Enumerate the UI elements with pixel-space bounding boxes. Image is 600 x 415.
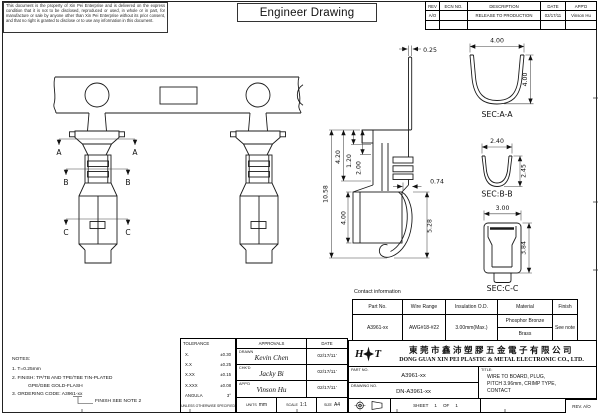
drawing-no-value: DN-A3961-xx bbox=[349, 389, 478, 395]
approval-row-checked: CHK'D Jacky Bi 02/17/11' bbox=[237, 365, 347, 381]
sec-cc-width: 3.00 bbox=[496, 205, 510, 212]
approval-row-approved: APP'D Vinson Hu 02/17/11' bbox=[237, 381, 347, 397]
contact-header-insulation: Insulation O.D. bbox=[446, 300, 497, 315]
terminal-front-view bbox=[70, 113, 125, 263]
dim-lance-offset: 0.74 bbox=[430, 179, 444, 186]
revision-badge: REV. A/O bbox=[565, 399, 597, 413]
sheet-cell: SHEET 1 OF 1 bbox=[391, 399, 481, 412]
tolerance-row: ANGULA3° bbox=[181, 391, 235, 401]
tolerance-title: TOLERANCE bbox=[181, 339, 235, 349]
dim-box-height: 4.00 bbox=[341, 211, 348, 225]
company-logo: HT bbox=[349, 346, 387, 362]
terminal-front-views bbox=[70, 113, 286, 263]
section-marker-b2: B bbox=[125, 178, 130, 187]
contact-col-material: Material Phosphor Bronze Brass bbox=[498, 300, 553, 340]
contact-material-bottom: Brass bbox=[498, 328, 552, 340]
contact-header-finish: Finish bbox=[553, 300, 577, 315]
section-cut-lines bbox=[59, 139, 135, 225]
title-line-2: PITCH 3.96mm, CRIMP TYPE, bbox=[487, 381, 556, 387]
tolerance-row: X.XXX±0.08 bbox=[181, 380, 235, 390]
section-view-cc bbox=[484, 223, 521, 283]
strip-hole-rect bbox=[160, 87, 197, 104]
units-cell: UNITS mm bbox=[237, 398, 277, 412]
drawing-no-cell: DRAWING NO. DN-A3961-xx bbox=[349, 383, 478, 398]
title-block: HT 東莞市鑫沛塑膠五金電子有限公司 DONG GUAN XIN PEI PLA… bbox=[348, 340, 597, 413]
contact-header-partno: Part No. bbox=[353, 300, 402, 315]
engineering-drawing-sheet: { "sheet": { "disclaimer": "This documen… bbox=[0, 0, 600, 415]
size-cell: SIZE A4 bbox=[317, 398, 347, 412]
tolerance-footer: UNLESS OTHERWISE SPECIFIED bbox=[181, 401, 235, 412]
logo-star-icon bbox=[363, 346, 374, 362]
contact-col-partno: Part No. A3961-xx bbox=[353, 300, 403, 340]
part-no-cell: PART NO. A3961-xx bbox=[349, 367, 478, 383]
contact-insulation-value: 3.00mm(Max.) bbox=[446, 315, 497, 340]
note-3: GPE/GBE GOLD-FLASH bbox=[28, 384, 83, 389]
dim-blade-thickness: 0.25 bbox=[423, 47, 437, 54]
approval-date: 02/17/11' bbox=[307, 365, 347, 380]
third-angle-projection-icon bbox=[352, 400, 388, 411]
note-1: 1. T=0.25mm bbox=[12, 367, 41, 372]
contact-wirerange-value: AWG#18-#22 bbox=[403, 315, 445, 340]
contact-info-title: Contact information bbox=[354, 289, 401, 295]
notes-callout-bracket bbox=[73, 397, 93, 404]
tolerance-table: TOLERANCE X.±0.30 X.X±0.25 X.XX±0.15 X.X… bbox=[180, 338, 236, 413]
side-view-dimensions bbox=[329, 46, 430, 259]
dim-step-1: 1.20 bbox=[346, 154, 353, 168]
contact-partno-value: A3961-xx bbox=[353, 315, 402, 340]
contact-col-insulation: Insulation O.D. 3.00mm(Max.) bbox=[446, 300, 498, 340]
approval-date: 02/17/11' bbox=[307, 349, 347, 364]
tolerance-row: X.±0.30 bbox=[181, 349, 235, 359]
scale-cell: SCALE 1:1 bbox=[277, 398, 317, 412]
section-bb-dims bbox=[482, 144, 523, 187]
contact-material-top: Phosphor Bronze bbox=[498, 315, 552, 328]
dim-upper-height: 4.20 bbox=[335, 150, 342, 164]
title-line-1: WIRE TO BOARD, PLUG, bbox=[487, 374, 545, 380]
title-line-3: CONTACT bbox=[487, 388, 511, 394]
sec-bb-height: 2.45 bbox=[521, 164, 528, 178]
drawing-title-cell: TITLE: WIRE TO BOARD, PLUG, PITCH 3.96mm… bbox=[479, 367, 596, 398]
sec-bb-label: SEC:B-B bbox=[481, 190, 512, 199]
approval-date: 02/17/11' bbox=[307, 381, 347, 396]
contact-header-wirerange: Wire Range bbox=[403, 300, 445, 315]
sec-bb-width: 2.40 bbox=[490, 138, 504, 145]
approvals-table: APPROVALS DATE DRAWN Kevin Chen 02/17/11… bbox=[236, 338, 348, 413]
section-marker-a1: A bbox=[56, 148, 62, 157]
projection-symbol bbox=[349, 399, 391, 412]
section-line-c bbox=[66, 219, 128, 225]
sec-aa-label: SEC:A-A bbox=[481, 110, 513, 119]
contact-col-finish: Finish See note bbox=[553, 300, 577, 340]
approval-row-drawn: DRAWN Kevin Chen 02/17/11' bbox=[237, 349, 347, 365]
section-view-bb bbox=[482, 156, 512, 187]
contact-header-material: Material bbox=[498, 300, 552, 315]
strip-hole-circle bbox=[85, 83, 109, 107]
signature: Vinson Hu bbox=[237, 386, 306, 394]
sec-cc-label: SEC:C-C bbox=[487, 284, 519, 293]
approvals-header: APPROVALS bbox=[237, 339, 307, 348]
dim-overall-height: 10.58 bbox=[323, 185, 330, 203]
carrier-strip bbox=[54, 77, 303, 113]
contact-col-wirerange: Wire Range AWG#18-#22 bbox=[403, 300, 446, 340]
sec-aa-height: 4.00 bbox=[522, 73, 529, 87]
strip-hole-circle bbox=[246, 83, 270, 107]
tolerance-row: X.XX±0.15 bbox=[181, 370, 235, 380]
part-no-value: A3961-xx bbox=[349, 373, 478, 379]
dim-step-2: 2.00 bbox=[356, 161, 363, 175]
notes-heading: NOTES: bbox=[12, 357, 30, 362]
terminal-side-view bbox=[353, 57, 413, 257]
section-line-b bbox=[66, 169, 128, 175]
section-marker-c1: C bbox=[63, 228, 68, 237]
signature: Jacky Bi bbox=[237, 370, 306, 378]
signature: Kevin Chen bbox=[237, 354, 306, 362]
company-name-cn: 東莞市鑫沛塑膠五金電子有限公司 bbox=[409, 344, 574, 356]
contact-finish-value: See note bbox=[553, 315, 577, 340]
section-view-aa bbox=[470, 55, 524, 104]
contact-info-table: Part No. A3961-xx Wire Range AWG#18-#22 … bbox=[352, 299, 578, 341]
sec-aa-width: 4.00 bbox=[490, 38, 504, 45]
note-4: 3. ORDERING CODE: A3961-xx bbox=[12, 392, 82, 397]
section-marker-a2: A bbox=[132, 148, 138, 157]
section-marker-c2: C bbox=[125, 228, 130, 237]
sec-cc-height: 3.84 bbox=[521, 241, 528, 255]
section-marker-b1: B bbox=[63, 178, 68, 187]
company-name-en: DONG GUAN XIN PEI PLASTIC & METAL ELECTR… bbox=[399, 357, 584, 363]
note-2: 2. FINISH: TP/TB AND TPE/TBE TIN-PLATED bbox=[12, 376, 112, 381]
approvals-date-header: DATE bbox=[307, 339, 347, 348]
note-callout: FINISH SEE NOTE 2 bbox=[95, 399, 141, 404]
tolerance-row: X.X±0.25 bbox=[181, 359, 235, 369]
dim-lance-height: 5.28 bbox=[427, 219, 434, 233]
